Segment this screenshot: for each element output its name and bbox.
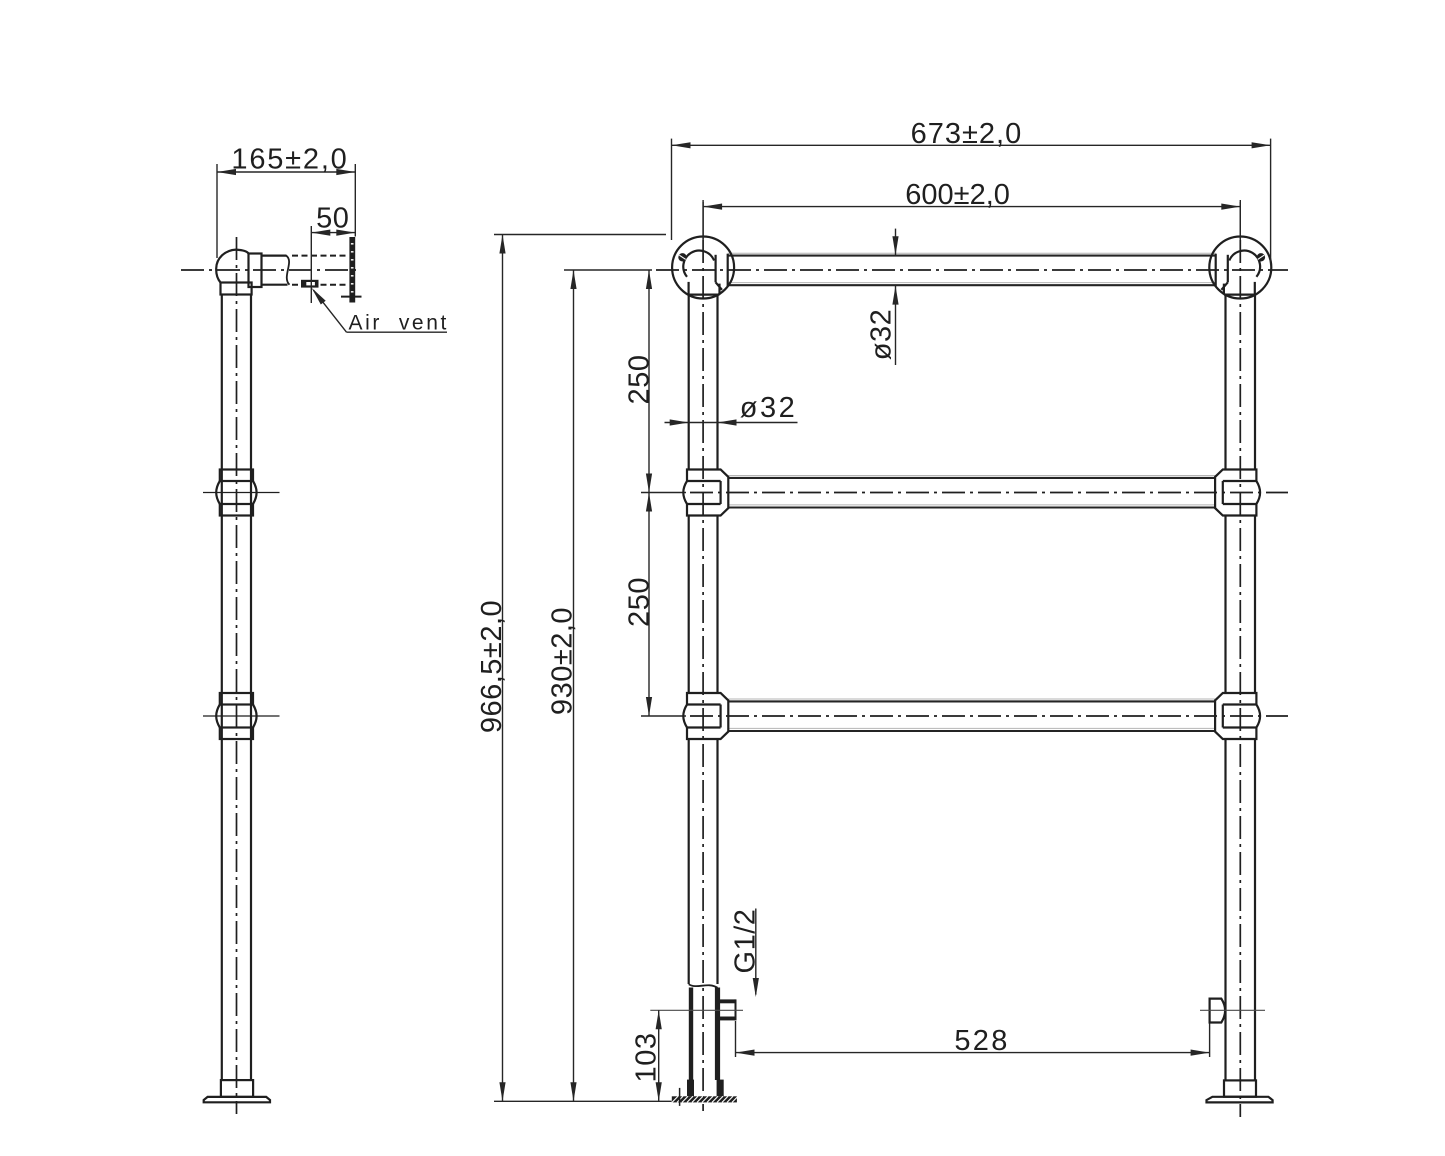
svg-text:600±2,0: 600±2,0 (905, 179, 1010, 211)
svg-text:ø32: ø32 (740, 392, 797, 424)
svg-text:966,5±2,0: 966,5±2,0 (476, 600, 508, 733)
svg-text:165±2,0: 165±2,0 (231, 144, 348, 176)
svg-text:528: 528 (954, 1025, 1009, 1057)
svg-text:250: 250 (624, 577, 656, 627)
svg-text:Air vent: Air vent (349, 312, 449, 335)
svg-text:930±2,0: 930±2,0 (547, 607, 579, 715)
svg-text:250: 250 (624, 355, 656, 405)
svg-text:673±2,0: 673±2,0 (911, 118, 1023, 150)
svg-text:103: 103 (631, 1033, 663, 1083)
svg-text:ø32: ø32 (866, 309, 898, 360)
svg-text:G1/2: G1/2 (730, 909, 762, 974)
svg-text:50: 50 (316, 203, 349, 235)
